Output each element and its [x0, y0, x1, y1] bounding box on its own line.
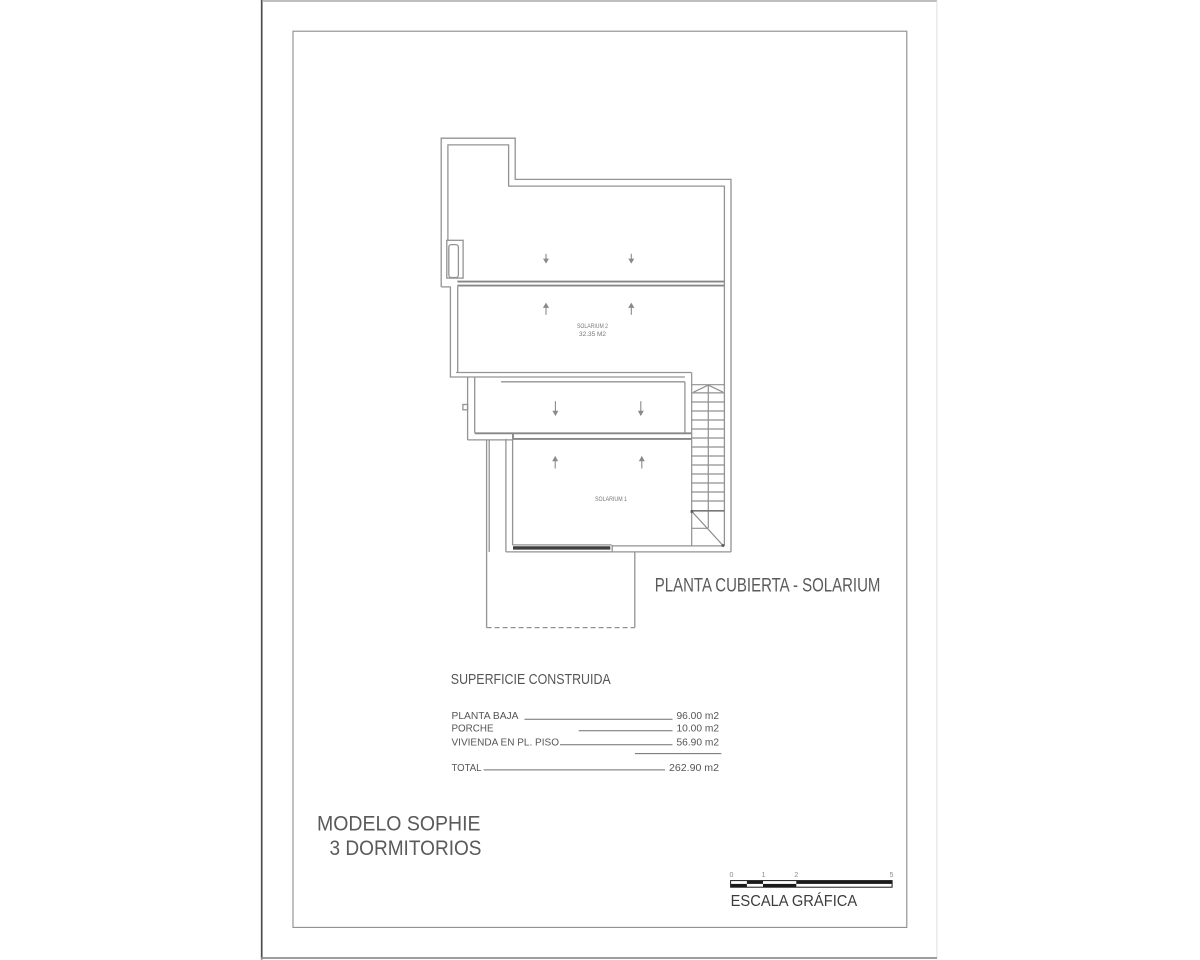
svg-text:PLANTA BAJA: PLANTA BAJA	[452, 711, 519, 722]
svg-text:SOLARIUM 1: SOLARIUM 1	[595, 496, 627, 503]
svg-text:0: 0	[730, 872, 734, 879]
svg-text:262.90 m2: 262.90 m2	[669, 763, 719, 774]
svg-text:ESCALA GRÁFICA: ESCALA GRÁFICA	[731, 891, 858, 910]
svg-text:10.00 m2: 10.00 m2	[677, 723, 720, 734]
svg-text:SUPERFICIE CONSTRUIDA: SUPERFICIE CONSTRUIDA	[451, 671, 612, 688]
svg-text:56.90 m2: 56.90 m2	[677, 738, 720, 749]
svg-text:3 DORMITORIOS: 3 DORMITORIOS	[330, 836, 482, 860]
svg-text:PORCHE: PORCHE	[452, 723, 494, 734]
svg-text:SOLARIUM 2: SOLARIUM 2	[577, 323, 608, 330]
svg-text:TOTAL: TOTAL	[452, 763, 482, 774]
svg-text:VIVIENDA EN PL. PISO: VIVIENDA EN PL. PISO	[452, 738, 560, 749]
svg-text:2: 2	[794, 872, 798, 879]
svg-text:32.35 M2: 32.35 M2	[579, 331, 606, 338]
svg-text:1: 1	[762, 872, 766, 879]
svg-text:96.00 m2: 96.00 m2	[677, 711, 720, 722]
svg-text:PLANTA CUBIERTA - SOLARIUM: PLANTA CUBIERTA - SOLARIUM	[655, 574, 881, 596]
svg-text:5: 5	[890, 872, 894, 879]
svg-text:MODELO SOPHIE: MODELO SOPHIE	[317, 812, 481, 836]
